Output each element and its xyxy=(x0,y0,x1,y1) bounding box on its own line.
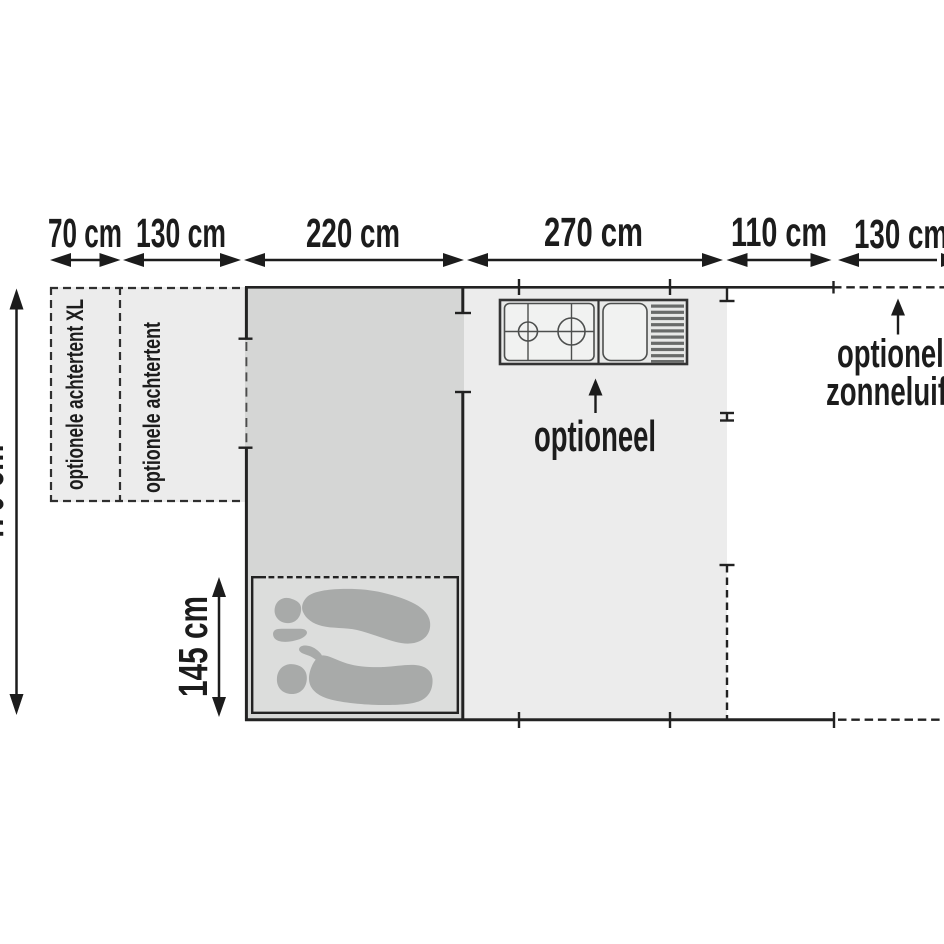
svg-text:130 cm: 130 cm xyxy=(854,211,944,257)
svg-text:110 cm: 110 cm xyxy=(731,209,827,255)
svg-text:zonneluifel: zonneluifel xyxy=(826,370,944,414)
svg-text:optionele achtertent: optionele achtertent xyxy=(139,322,166,493)
svg-text:220 cm: 220 cm xyxy=(306,210,400,256)
svg-text:470 cm: 470 cm xyxy=(0,445,12,546)
svg-text:optioneel: optioneel xyxy=(534,412,656,461)
svg-text:70 cm: 70 cm xyxy=(48,210,122,256)
svg-text:optionele achtertent XL: optionele achtertent XL xyxy=(62,299,89,490)
svg-text:130 cm: 130 cm xyxy=(136,210,226,256)
svg-text:145 cm: 145 cm xyxy=(170,596,216,697)
svg-text:270 cm: 270 cm xyxy=(544,209,643,255)
